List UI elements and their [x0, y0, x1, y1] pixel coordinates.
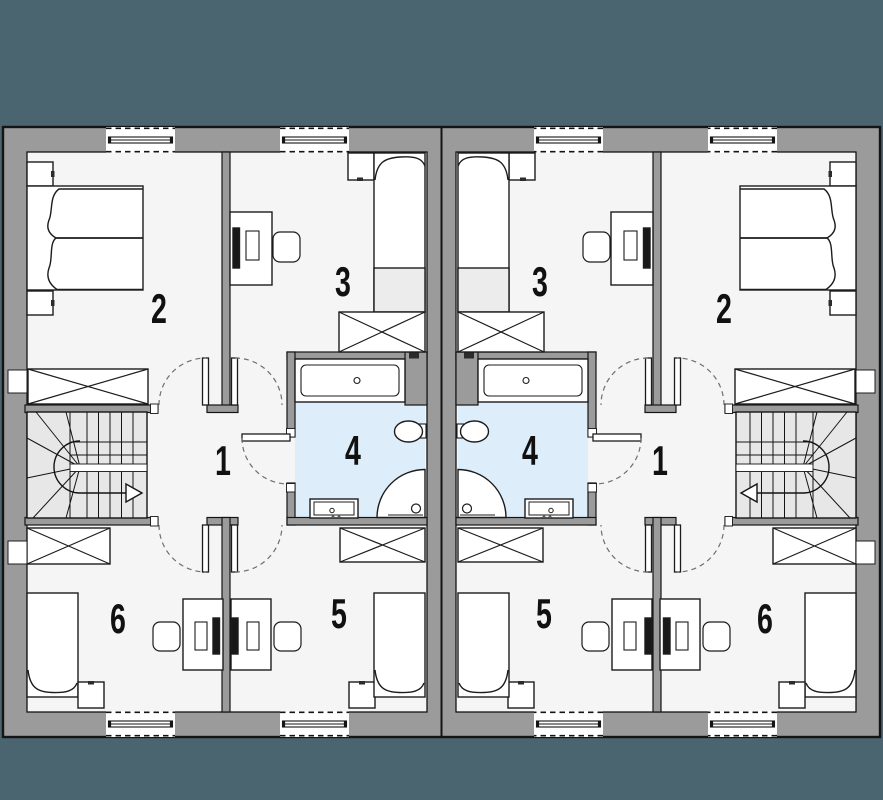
chair — [274, 622, 301, 651]
knob — [359, 681, 365, 685]
bathtub-inner — [301, 365, 399, 396]
faucet-dot — [332, 516, 334, 518]
keyboard — [246, 231, 259, 260]
room-label-1-left: 1 — [215, 436, 231, 484]
door-leaf-room5 — [232, 525, 238, 572]
jamb — [151, 517, 159, 527]
monitor — [213, 618, 220, 654]
window-end-cap — [170, 137, 173, 144]
room-label-6-right: 6 — [757, 594, 773, 642]
jamb — [151, 404, 159, 414]
chimney-block — [405, 352, 427, 405]
window-end-cap — [109, 137, 112, 144]
wall-niche — [8, 370, 27, 393]
floor-plan-canvas: 1 2 3 4 5 6 1 2 3 4 5 6 — [0, 0, 883, 800]
knob — [51, 171, 55, 177]
window — [106, 127, 175, 153]
wall-bathroom-west-upper — [287, 352, 295, 437]
single-bed — [374, 593, 425, 697]
room-label-6-left: 6 — [110, 594, 126, 642]
floor-plan-svg: 1 2 3 4 5 6 1 2 3 4 5 6 — [0, 0, 883, 800]
wall-room2-room3 — [222, 152, 230, 412]
staircase — [27, 412, 147, 518]
door-leaf-bathroom — [242, 434, 290, 441]
nightstand — [27, 162, 53, 186]
knob — [51, 300, 55, 306]
window — [280, 127, 349, 153]
nightstand — [348, 153, 374, 180]
room-label-5-right: 5 — [536, 589, 552, 637]
chair — [153, 622, 180, 651]
room-label-4-left: 4 — [345, 426, 361, 474]
flue-vent — [409, 352, 419, 359]
wall-hall-top-cap — [207, 405, 238, 413]
shower-drain — [412, 504, 421, 513]
single-bed — [27, 593, 78, 697]
keyboard — [247, 622, 259, 650]
nightstand — [78, 682, 104, 708]
room-label-2-right: 2 — [716, 284, 732, 332]
knob — [88, 681, 94, 685]
door-leaf-room2 — [203, 358, 209, 405]
bathtub-drain — [354, 378, 360, 384]
wall-niche — [8, 541, 27, 564]
washbasin-drain — [330, 508, 334, 512]
room-label-3-right: 3 — [532, 257, 548, 305]
room-label-3-left: 3 — [335, 257, 351, 305]
room-label-5-left: 5 — [331, 589, 347, 637]
window — [280, 711, 349, 737]
chair — [273, 232, 300, 262]
monitor — [233, 228, 240, 268]
monitor — [232, 618, 239, 654]
nightstand — [27, 291, 53, 315]
nightstand — [349, 682, 375, 708]
stair-flight-gap — [70, 464, 147, 472]
bed-foot — [374, 268, 425, 312]
faucet-dot — [338, 516, 340, 518]
door-leaf-room3 — [232, 358, 238, 405]
room-label-1-right: 1 — [652, 436, 668, 484]
door-leaf-room6 — [203, 525, 209, 572]
jamb — [287, 484, 296, 493]
room-label-4-right: 4 — [522, 426, 538, 474]
window — [106, 711, 175, 737]
room-label-2-left: 2 — [151, 284, 167, 332]
knob — [357, 178, 363, 182]
toilet — [395, 421, 423, 442]
washbasin-inner — [314, 502, 354, 515]
keyboard — [195, 622, 207, 650]
